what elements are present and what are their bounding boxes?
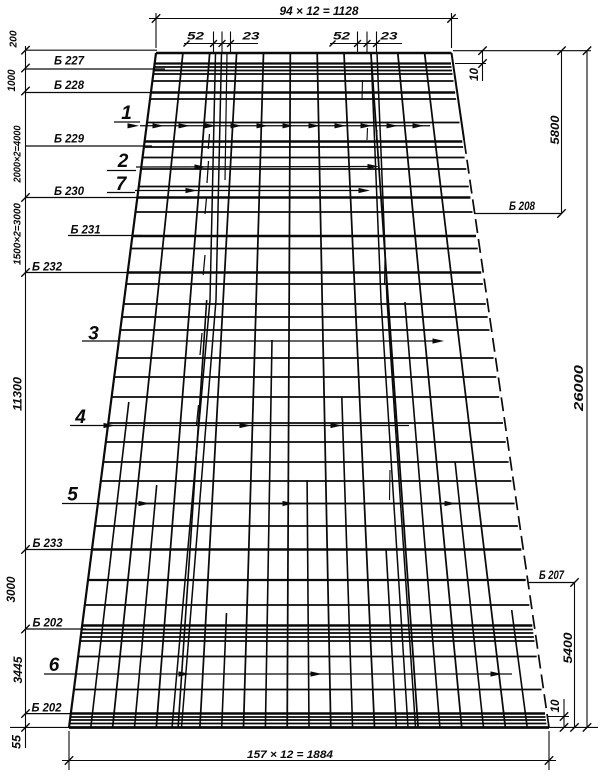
- svg-text:Б 202: Б 202: [32, 701, 62, 715]
- svg-text:6: 6: [49, 655, 60, 676]
- svg-text:5: 5: [67, 485, 78, 506]
- svg-text:11300: 11300: [11, 377, 25, 411]
- svg-text:23: 23: [379, 31, 397, 43]
- svg-text:2000×2=4000: 2000×2=4000: [13, 125, 24, 183]
- svg-text:5800: 5800: [548, 115, 562, 144]
- svg-text:52: 52: [333, 31, 350, 43]
- svg-text:10: 10: [548, 699, 562, 712]
- svg-text:23: 23: [241, 31, 259, 43]
- svg-text:94 × 12 = 1128: 94 × 12 = 1128: [280, 6, 360, 18]
- svg-text:55: 55: [10, 735, 24, 749]
- svg-text:Б 229: Б 229: [54, 132, 84, 146]
- svg-text:1000: 1000: [6, 69, 18, 92]
- svg-text:1500×2=3000: 1500×2=3000: [12, 203, 24, 265]
- svg-text:7: 7: [116, 174, 128, 195]
- svg-text:26000: 26000: [571, 364, 586, 412]
- svg-text:Б 227: Б 227: [54, 54, 85, 68]
- svg-text:10: 10: [467, 68, 481, 81]
- svg-text:1: 1: [121, 103, 132, 124]
- svg-text:Б 233: Б 233: [33, 536, 63, 550]
- svg-text:Б 202: Б 202: [33, 616, 63, 630]
- svg-text:3445: 3445: [11, 656, 25, 683]
- svg-text:Б 232: Б 232: [32, 260, 62, 274]
- svg-text:Б 207: Б 207: [539, 570, 564, 582]
- svg-text:Б 208: Б 208: [509, 201, 536, 213]
- svg-text:3000: 3000: [4, 576, 18, 602]
- svg-text:52: 52: [187, 31, 204, 43]
- svg-text:157 × 12 = 1884: 157 × 12 = 1884: [247, 749, 333, 761]
- svg-text:Б 231: Б 231: [71, 223, 101, 237]
- svg-text:2: 2: [117, 151, 129, 172]
- svg-text:Б 228: Б 228: [54, 78, 84, 92]
- svg-text:4: 4: [74, 407, 86, 428]
- svg-text:5400: 5400: [561, 632, 575, 663]
- svg-text:Б 230: Б 230: [54, 184, 84, 198]
- svg-text:200: 200: [8, 30, 20, 48]
